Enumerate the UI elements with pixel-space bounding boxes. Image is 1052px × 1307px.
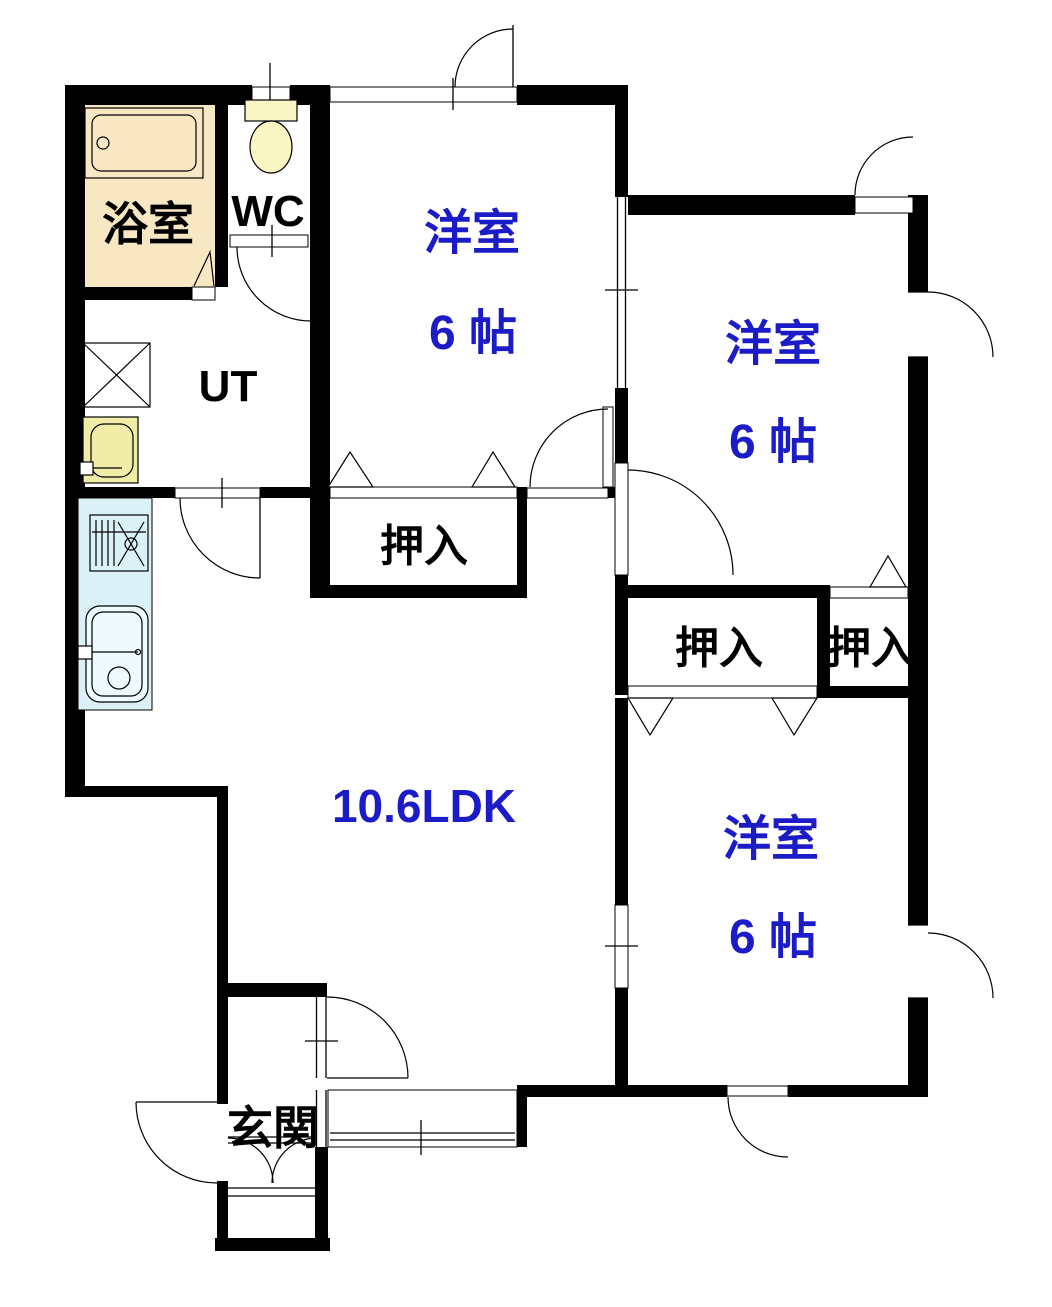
western-room-right-label: 洋室 [725, 318, 821, 371]
ut-door-gap [175, 488, 260, 498]
wc-door-gap [230, 235, 308, 247]
floor-plan: 浴室 WC UT 洋室 6 帖 洋室 6 帖 洋室 6 帖 10.6LDK 押入… [0, 0, 1052, 1302]
kitchen-sink-icon [78, 606, 148, 702]
closet-door-triangle [772, 698, 817, 735]
entrance-door-frame [305, 997, 338, 1078]
toilet-label: WC [231, 187, 304, 236]
room-right-top-window [855, 197, 913, 213]
balcony-door-swing [728, 1097, 788, 1157]
closet-mid-right-door-band [830, 587, 908, 598]
hall-to-ldk-door [327, 997, 408, 1078]
room-top-window [330, 87, 517, 102]
washbasin-icon [80, 417, 138, 483]
closet-mid-right-label: 押入 [827, 624, 915, 673]
closet-top-label: 押入 [380, 522, 468, 571]
room-top-door-gap [527, 488, 608, 498]
closet-mid-left-label: 押入 [675, 624, 763, 673]
utility-label: UT [199, 362, 258, 411]
closet-mid-left-door-band [628, 686, 817, 698]
room-bottom-side-window [908, 925, 928, 998]
room-right-side-window-swing [928, 292, 993, 357]
closet-top-door-band [330, 487, 517, 498]
front-entrance-door [136, 1102, 217, 1183]
floor-plan-drawing: 浴室 WC UT 洋室 6 帖 洋室 6 帖 洋室 6 帖 10.6LDK 押入… [0, 0, 1052, 1302]
entrance-label: 玄関 [227, 1102, 319, 1154]
room-bottom-side-window-swing [928, 933, 993, 998]
room-right-top-window-swing [855, 137, 913, 195]
western-room-top-size: 6 帖 [429, 307, 517, 360]
western-room-right-size: 6 帖 [729, 416, 817, 469]
closet-door-triangle [870, 556, 906, 587]
bath-door-gap [192, 287, 215, 300]
western-room-bottom-size: 6 帖 [729, 911, 817, 964]
ut-door [180, 498, 260, 578]
western-room-bottom-label: 洋室 [723, 813, 819, 866]
inter-room-window [605, 197, 638, 388]
room-right-side-window [908, 292, 928, 357]
closet-door-triangle [472, 452, 515, 487]
wc-door [237, 247, 311, 321]
room-top-entry-door [530, 407, 613, 487]
closet-door-triangle [328, 452, 373, 487]
toilet-icon [245, 100, 297, 173]
ldk-label: 10.6LDK [332, 780, 516, 832]
room-top-balcony-door [455, 25, 513, 87]
washing-machine-icon [83, 343, 150, 407]
room-right-entry-door [628, 470, 733, 575]
ldk-big-window [317, 1090, 518, 1155]
inter-room-door-gap [615, 463, 628, 575]
closet-door-triangle [628, 698, 673, 735]
balcony-door-gap [727, 1086, 788, 1096]
western-room-top-label: 洋室 [424, 207, 520, 260]
bathroom-label: 浴室 [102, 198, 194, 250]
